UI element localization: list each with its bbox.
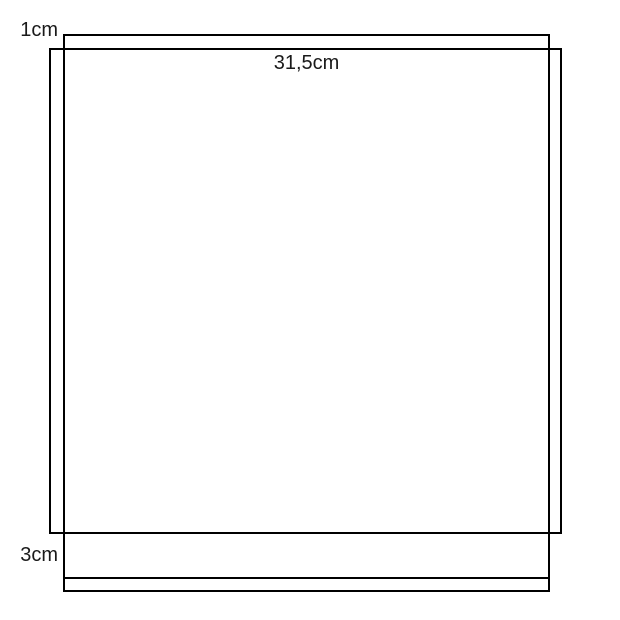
bottom-hem-label: 3cm	[0, 545, 58, 565]
width-dimension-label: 31,5cm	[63, 53, 550, 73]
panel-rectangle-offset	[49, 48, 562, 534]
top-allowance-label: 1cm	[0, 20, 58, 40]
pattern-diagram: 1cm 31,5cm 3cm	[0, 0, 620, 620]
hem-fold-line	[63, 577, 550, 579]
